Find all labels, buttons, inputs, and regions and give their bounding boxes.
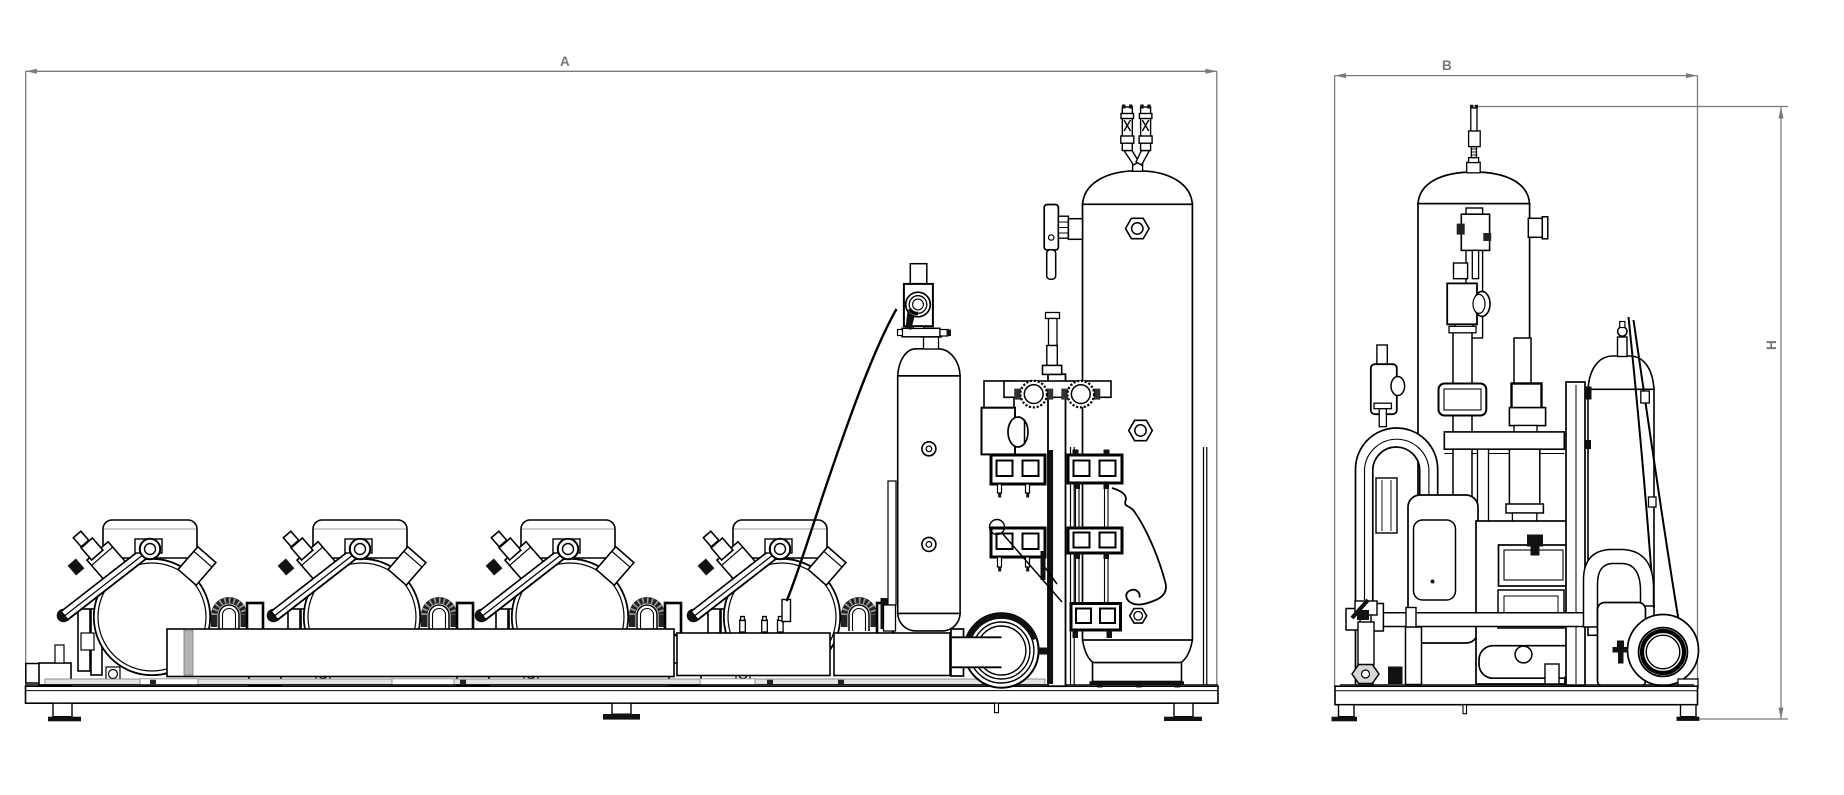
svg-text:B: B xyxy=(1442,58,1452,73)
svg-text:H: H xyxy=(1764,340,1779,350)
svg-text:A: A xyxy=(560,54,570,69)
